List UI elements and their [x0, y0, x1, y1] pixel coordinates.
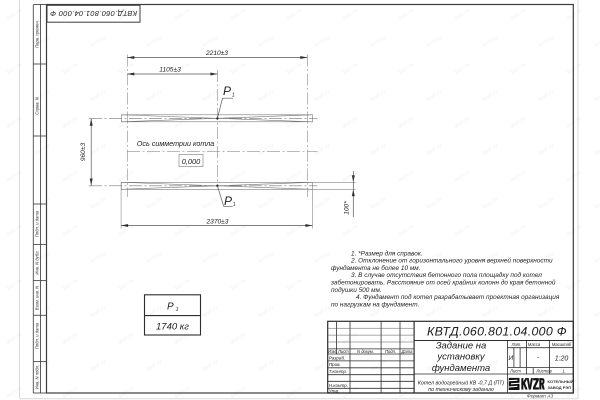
svg-text:КВТД.060.801.04.000 Ф: КВТД.060.801.04.000 Ф	[427, 325, 567, 339]
svg-text:Лист: Лист	[337, 349, 349, 354]
svg-text:КВТД.060.801.04.000 Ф: КВТД.060.801.04.000 Ф	[50, 9, 137, 18]
svg-text:Дата: Дата	[400, 349, 413, 354]
svg-text:Т.контр.: Т.контр.	[329, 369, 348, 374]
svg-text:Масса: Масса	[528, 342, 541, 347]
svg-text:1. *Размер для справок.: 1. *Размер для справок.	[351, 249, 423, 257]
svg-text:P: P	[223, 84, 231, 98]
svg-text:Формат А3: Формат А3	[527, 394, 554, 400]
svg-text:Инв. N дубл.: Инв. N дубл.	[35, 250, 40, 274]
svg-text:КОТЕЛЬНЫЙ: КОТЕЛЬНЫЙ	[548, 379, 574, 384]
svg-text:Задание на: Задание на	[436, 340, 487, 351]
svg-text:N докум.: N докум.	[357, 349, 374, 354]
svg-text:Лит.: Лит.	[511, 342, 522, 347]
svg-text:1105±3: 1105±3	[159, 67, 181, 74]
svg-text:2210±3: 2210±3	[205, 50, 228, 57]
svg-text:1: 1	[232, 92, 235, 98]
svg-text:подушки 500 мм.: подушки 500 мм.	[331, 286, 382, 294]
svg-text:И: И	[508, 355, 513, 362]
svg-text:Изм.: Изм.	[328, 349, 337, 354]
svg-text:Перв. примен.: Перв. примен.	[35, 20, 40, 48]
svg-text:по нагрузкам на фундамент.: по нагрузкам на фундамент.	[331, 300, 419, 308]
svg-text:фундамента не более 10 мм.: фундамента не более 10 мм.	[331, 264, 420, 272]
svg-text:Масштаб: Масштаб	[552, 342, 572, 347]
svg-text:1740 кг: 1740 кг	[156, 322, 189, 333]
svg-text:2. Отклонение от горизонтально: 2. Отклонение от горизонтального уровня …	[350, 257, 553, 265]
svg-text:Инв. N подл.: Инв. N подл.	[35, 365, 40, 389]
svg-text:по техническому заданию: по техническому заданию	[428, 387, 493, 393]
svg-text:P: P	[167, 302, 174, 313]
svg-text:Утв.: Утв.	[329, 389, 339, 394]
svg-text:Пров.: Пров.	[329, 362, 341, 367]
svg-text:Ось симметрии котла: Ось симметрии котла	[137, 139, 215, 148]
svg-text:1: 1	[233, 202, 236, 208]
svg-text:Подп. и дата: Подп. и дата	[35, 322, 40, 349]
svg-text:забетонировать. Расстояние от: забетонировать. Расстояние от осей крайн…	[330, 279, 556, 287]
svg-text:0,000: 0,000	[182, 157, 201, 166]
svg-text:Взам. инв. N: Взам. инв. N	[35, 285, 40, 310]
svg-text:фундамента: фундамента	[432, 363, 490, 374]
svg-text:Подп. и дата: Подп. и дата	[35, 210, 40, 237]
svg-text:100*: 100*	[344, 201, 351, 215]
svg-text:1: 1	[562, 368, 564, 373]
svg-text:Листов: Листов	[535, 368, 552, 373]
svg-text:Лист: Лист	[509, 368, 521, 373]
svg-text:4. Фундамент под котел разраба: 4. Фундамент под котел разрабатывает про…	[356, 293, 560, 301]
svg-text:Разраб.: Разраб.	[329, 356, 346, 361]
svg-text:P: P	[224, 194, 232, 208]
svg-text:1: 1	[176, 307, 179, 313]
svg-text:Н.контр.: Н.контр.	[329, 383, 348, 388]
svg-text:2370±3: 2370±3	[206, 218, 229, 225]
svg-text:установку: установку	[436, 352, 486, 363]
svg-text:ЗАВОД РЭП: ЗАВОД РЭП	[548, 385, 572, 390]
svg-text:Справ. N: Справ. N	[35, 96, 40, 114]
svg-text:Подп.: Подп.	[385, 349, 396, 354]
svg-text:1:20: 1:20	[555, 356, 569, 363]
svg-text:960±3: 960±3	[80, 143, 87, 162]
svg-text:3. В случае отсутствия бетонно: 3. В случае отсутствия бетонного пола пл…	[351, 271, 542, 279]
svg-text:Котел водогрейный КВ -0,7 Д (: Котел водогрейный КВ -0,7 Д (ПТ)	[418, 380, 505, 387]
